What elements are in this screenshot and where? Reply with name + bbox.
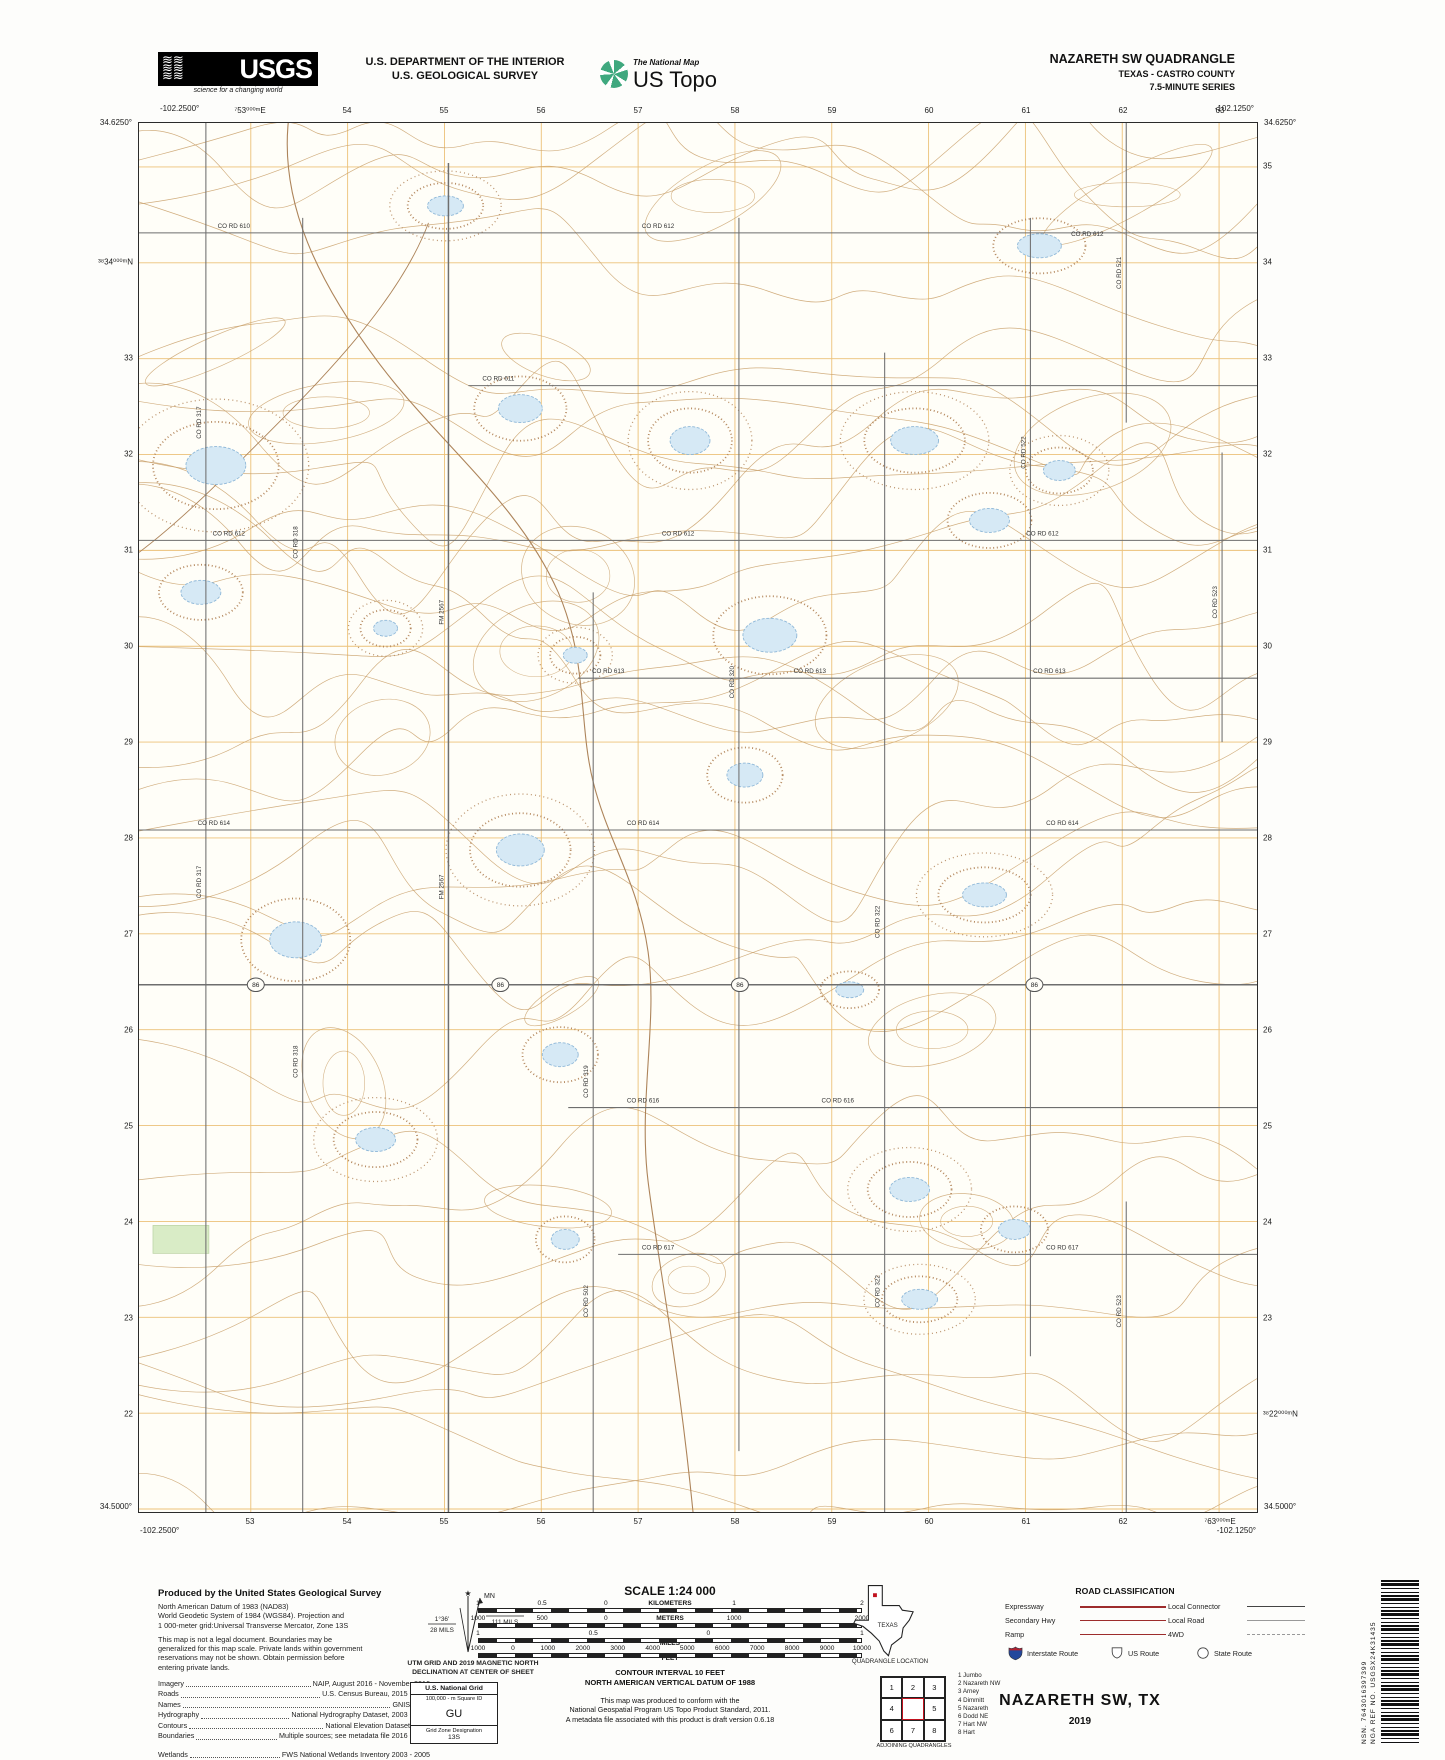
grid-label-bottom: 62 xyxy=(1119,1517,1128,1526)
grid-label-left: 31 xyxy=(124,546,133,555)
contour-interval: CONTOUR INTERVAL 10 FEET xyxy=(520,1668,820,1678)
usgs-tagline: science for a changing world xyxy=(158,87,318,94)
scale-tick: 8000 xyxy=(785,1645,800,1652)
adjoining-cell-current xyxy=(902,1698,923,1719)
road-label: CO RD 612 xyxy=(1071,231,1104,238)
barcode-nsn: NSN. 7643016397399 xyxy=(1360,1580,1369,1744)
quad-name: NAZARETH SW QUADRANGLE xyxy=(905,52,1235,66)
grid-label-bottom: ⁷63⁰⁰⁰ᵐE xyxy=(1204,1517,1235,1526)
credit-row: ContoursNational Elevation Dataset, 2007 xyxy=(158,1721,430,1731)
national-map-brand: The National Map xyxy=(633,58,699,67)
state-route-legend: State Route xyxy=(1196,1646,1252,1660)
scale-tick: 2000 xyxy=(575,1645,590,1652)
credit-row: WetlandsFWS National Wetlands Inventory … xyxy=(158,1750,430,1760)
quadrangle-heading: NAZARETH SW QUADRANGLE TEXAS - CASTRO CO… xyxy=(905,52,1235,92)
dept-line1: U.S. DEPARTMENT OF THE INTERIOR xyxy=(300,55,630,69)
road-class-row: Ramp xyxy=(1005,1630,1166,1639)
us-route-shield-icon xyxy=(1110,1646,1124,1660)
road-label: CO RD 610 xyxy=(218,223,251,230)
grid-label-right: 25 xyxy=(1263,1122,1272,1131)
corner-latitude-bl: 34.5000° xyxy=(56,1502,132,1511)
pond xyxy=(1043,461,1075,481)
quad-series: 7.5-MINUTE SERIES xyxy=(905,82,1235,92)
road-label: CO RD 322 xyxy=(875,1275,882,1308)
dept-line2: U.S. GEOLOGICAL SURVEY xyxy=(300,69,630,83)
scale-tick: 0.5 xyxy=(538,1600,547,1607)
credit-row: RoadsU.S. Census Bureau, 2015 - 2018 xyxy=(158,1689,430,1699)
grid-label-left: 27 xyxy=(124,930,133,939)
road-class-row: Local Road xyxy=(1168,1616,1305,1625)
grid-label-left: ³⁸34⁰⁰⁰ᵐN xyxy=(98,258,133,267)
grid-label-bottom: 54 xyxy=(343,1517,352,1526)
grid-label-top: 55 xyxy=(440,106,449,115)
interstate-route-legend: Interstate Route xyxy=(1008,1646,1078,1661)
credit-leader xyxy=(190,1757,280,1758)
grid-label-left: 30 xyxy=(124,642,133,651)
road-label: CO RD 317 xyxy=(196,406,203,439)
road-class-row: Secondary Hwy xyxy=(1005,1616,1166,1625)
grid-label-left: 32 xyxy=(124,450,133,459)
adjoining-quadrangle-grid: 12345678 xyxy=(880,1676,946,1742)
state-route-number: 86 xyxy=(497,982,505,989)
svg-text:1°36': 1°36' xyxy=(435,1615,449,1623)
road-label: CO RD 522 xyxy=(1020,436,1027,469)
adjoining-name: 2 Nazareth NW xyxy=(958,1680,1048,1688)
grid-label-right: 27 xyxy=(1263,930,1272,939)
pond xyxy=(563,647,587,663)
scale-unit: METERS xyxy=(656,1615,683,1622)
credit-row: BoundariesMultiple sources; see metadata… xyxy=(158,1731,430,1741)
grid-label-left: 28 xyxy=(124,834,133,843)
scale-bar-feet: 1000010002000300040005000600070008000900… xyxy=(478,1645,862,1660)
scale-tick: 4000 xyxy=(645,1645,660,1652)
road-class-row: Expressway xyxy=(1005,1602,1166,1611)
quadrangle-location-caption: QUADRANGLE LOCATION xyxy=(822,1658,958,1665)
datum-note-line: World Geodetic System of 1984 (WGS84). P… xyxy=(158,1611,430,1620)
adjoining-caption: ADJOINING QUADRANGLES xyxy=(856,1743,972,1749)
pond xyxy=(970,508,1010,532)
grid-label-top: 58 xyxy=(731,106,740,115)
road-class-label: Ramp xyxy=(1005,1630,1075,1639)
credit-leader xyxy=(183,1707,391,1708)
quad-county: TEXAS - CASTRO COUNTY xyxy=(905,69,1235,79)
datum-note-line: This map is not a legal document. Bounda… xyxy=(158,1635,430,1644)
corner-longitude-tl: -102.2500° xyxy=(160,104,199,113)
barcode-ref: NGA REF NO. USGSX24K31435 xyxy=(1369,1580,1378,1744)
road-label: CO RD 322 xyxy=(875,905,882,938)
grid-label-left: 25 xyxy=(124,1122,133,1131)
conformance-note: This map was produced to conform with th… xyxy=(490,1696,850,1724)
grid-label-bottom: 55 xyxy=(440,1517,449,1526)
grid-label-left: 29 xyxy=(124,738,133,747)
interstate-shield-icon xyxy=(1008,1646,1023,1661)
grid-label-right: 28 xyxy=(1263,834,1272,843)
credit-label: Wetlands xyxy=(158,1750,188,1760)
svg-text:TEXAS: TEXAS xyxy=(878,1622,898,1629)
grid-label-right: 24 xyxy=(1263,1218,1272,1227)
credit-label: Names xyxy=(158,1700,181,1710)
pond xyxy=(1017,234,1061,258)
adjoining-cell: 4 xyxy=(881,1698,902,1719)
credit-value: FWS National Wetlands Inventory 2003 - 2… xyxy=(282,1750,430,1760)
corner-latitude-br: 34.5000° xyxy=(1264,1502,1296,1511)
contour-interval-note: CONTOUR INTERVAL 10 FEET NORTH AMERICAN … xyxy=(520,1668,820,1688)
quad-location-marker xyxy=(873,1593,877,1597)
road-label: CO RD 319 xyxy=(583,1065,590,1098)
scale-tick: 1 xyxy=(476,1600,480,1607)
scale-tick: 6000 xyxy=(715,1645,730,1652)
barcode-stripes-icon xyxy=(1381,1580,1419,1744)
grid-label-top: ⁷53⁰⁰⁰ᵐE xyxy=(234,106,265,115)
pond xyxy=(186,447,246,485)
pond xyxy=(891,427,939,455)
corner-longitude-br: -102.1250° xyxy=(1160,1526,1256,1535)
pond xyxy=(542,1043,578,1067)
credit-label: Contours xyxy=(158,1721,187,1731)
scale-tick: 500 xyxy=(537,1615,548,1622)
scale-unit: KILOMETERS xyxy=(648,1600,691,1607)
scale-bar-graphic xyxy=(478,1653,862,1658)
usng-square-id: GU xyxy=(411,1702,497,1725)
road-class-sample-line xyxy=(1247,1620,1305,1621)
scale-bar-kilometers: 10.5012KILOMETERS xyxy=(478,1600,862,1615)
grid-label-bottom: 61 xyxy=(1022,1517,1031,1526)
scale-bar-graphic xyxy=(478,1608,862,1613)
true-north-star: ★ xyxy=(464,1590,471,1598)
grid-label-right: ³⁸22⁰⁰⁰ᵐN xyxy=(1263,1410,1298,1419)
scale-bar-meters: 1000500010002000METERS xyxy=(478,1615,862,1630)
grid-label-right: 34 xyxy=(1263,258,1272,267)
pond xyxy=(551,1229,579,1249)
road-label: CO RD 521 xyxy=(1116,256,1123,289)
road-label: CO RD 612 xyxy=(213,530,246,537)
road-label: CO RD 611 xyxy=(482,376,514,383)
datum-note-line: generalized for this map scale. Private … xyxy=(158,1644,430,1653)
adjoining-cell: 7 xyxy=(902,1720,923,1741)
grid-label-right: 33 xyxy=(1263,354,1272,363)
usgs-logo-box: ≋≋≋≋≋≋ USGS xyxy=(158,52,318,86)
grid-label-left: 22 xyxy=(124,1410,133,1419)
grid-label-bottom: 53 xyxy=(246,1517,255,1526)
vertical-datum: NORTH AMERICAN VERTICAL DATUM OF 1988 xyxy=(520,1678,820,1688)
scale-title: SCALE 1:24 000 xyxy=(520,1584,820,1598)
road-label: CO RD 614 xyxy=(198,820,231,827)
ustopo-globe-icon xyxy=(600,60,628,88)
grid-label-right: 31 xyxy=(1263,546,1272,555)
barcode: NSN. 7643016397399 NGA REF NO. USGSX24K3… xyxy=(1360,1580,1440,1744)
corner-latitude-tr: 34.6250° xyxy=(1264,118,1296,127)
road-label: CO RD 318 xyxy=(293,1045,300,1078)
road-label: CO RD 612 xyxy=(642,223,675,230)
road-label: FM 2567 xyxy=(438,599,445,624)
usgs-wave-icon: ≋≋≋≋≋≋ xyxy=(162,56,206,82)
state-route-number: 86 xyxy=(1031,982,1039,989)
road-label: CO RD 614 xyxy=(1046,820,1079,827)
grid-label-bottom: 56 xyxy=(537,1517,546,1526)
map-area: CO RD 610CO RD 612CO RD 612CO RD 611CO R… xyxy=(138,122,1258,1513)
credit-row: NamesGNIS, 2016 xyxy=(158,1700,430,1710)
grid-label-top: 54 xyxy=(343,106,352,115)
scale-tick: 1 xyxy=(732,1600,736,1607)
conformance-line: This map was produced to conform with th… xyxy=(490,1696,850,1705)
road-label: CO RD 617 xyxy=(1046,1244,1079,1251)
grid-label-top: 57 xyxy=(634,106,643,115)
adjoining-name: 1 Jumbo xyxy=(958,1672,1048,1680)
road-label: CO RD 523 xyxy=(1116,1295,1123,1328)
road-class-sample-line xyxy=(1080,1634,1166,1635)
pond xyxy=(727,763,763,787)
adjoining-cell: 2 xyxy=(902,1677,923,1698)
road-label: CO RD 320 xyxy=(729,665,736,698)
usng-zone-label: Grid Zone Designation xyxy=(411,1725,497,1734)
road-class-sample-line xyxy=(1247,1606,1305,1607)
scale-bar-miles: 10.501MILES xyxy=(478,1630,862,1645)
scale-tick: 0 xyxy=(707,1630,711,1637)
road-class-label: Local Road xyxy=(1168,1616,1242,1625)
grid-label-left: 23 xyxy=(124,1314,133,1323)
scale-tick: 1 xyxy=(476,1630,480,1637)
road-class-sample-line xyxy=(1247,1634,1305,1635)
road-label: CO RD 318 xyxy=(293,526,300,559)
usng-subtitle: 100,000 - m Square ID xyxy=(411,1695,497,1702)
credit-label: Boundaries xyxy=(158,1731,194,1741)
pond xyxy=(963,883,1007,907)
pond xyxy=(270,922,322,958)
grid-label-top: 61 xyxy=(1022,106,1031,115)
credit-label: Imagery xyxy=(158,1679,184,1689)
pond xyxy=(902,1289,938,1309)
road-label: CO RD 613 xyxy=(592,668,625,675)
road-class-label: Local Connector xyxy=(1168,1602,1242,1611)
pond xyxy=(743,618,797,652)
produced-title: Produced by the United States Geological… xyxy=(158,1588,430,1599)
usng-box: U.S. National Grid 100,000 - m Square ID… xyxy=(410,1682,498,1744)
datum-note-line: North American Datum of 1983 (NAD83) xyxy=(158,1602,430,1611)
scale-tick: 5000 xyxy=(680,1645,695,1652)
road-label: CO RD 616 xyxy=(822,1098,855,1105)
grid-label-right: 35 xyxy=(1263,162,1272,171)
road-label: CO RD 613 xyxy=(794,668,827,675)
road-class-label: 4WD xyxy=(1168,1630,1242,1639)
grid-label-right: 23 xyxy=(1263,1314,1272,1323)
pond xyxy=(427,196,463,216)
grid-label-bottom: 58 xyxy=(731,1517,740,1526)
road-class-row: 4WD xyxy=(1168,1630,1305,1639)
pond xyxy=(356,1128,396,1152)
credit-label: Hydrography xyxy=(158,1710,199,1720)
svg-text:28 MILS: 28 MILS xyxy=(430,1627,454,1634)
pond xyxy=(181,580,221,604)
scale-tick: 0 xyxy=(511,1645,515,1652)
grid-label-right: 32 xyxy=(1263,450,1272,459)
source-credits: ImageryNAIP, August 2016 - November 2016… xyxy=(158,1679,430,1760)
pond xyxy=(998,1219,1030,1239)
corner-longitude-bl: -102.2500° xyxy=(140,1526,179,1535)
state-route-number: 86 xyxy=(252,982,260,989)
adjoining-cell: 6 xyxy=(881,1720,902,1741)
road-classification-title: ROAD CLASSIFICATION xyxy=(1000,1586,1250,1596)
road-label: CO RD 614 xyxy=(627,820,660,827)
road-class-row: Local Connector xyxy=(1168,1602,1305,1611)
grid-label-top: 56 xyxy=(537,106,546,115)
credit-leader xyxy=(201,1718,289,1719)
svg-text:MN: MN xyxy=(484,1593,495,1600)
scale-tick: 1000 xyxy=(471,1615,486,1622)
road-class-sample-line xyxy=(1080,1606,1166,1608)
scale-tick: 7000 xyxy=(750,1645,765,1652)
grid-label-top: 59 xyxy=(828,106,837,115)
scale-tick: 1000 xyxy=(727,1615,742,1622)
road-label: CO RD 317 xyxy=(196,865,203,898)
credit-leader xyxy=(186,1686,311,1687)
corner-latitude-tl: 34.6250° xyxy=(56,118,132,127)
scale-tick: 9000 xyxy=(820,1645,835,1652)
conformance-line: A metadata file associated with this pro… xyxy=(490,1715,850,1724)
pond xyxy=(374,620,398,636)
us-route-legend: US Route xyxy=(1110,1646,1159,1660)
pond xyxy=(496,834,544,866)
pond xyxy=(890,1177,930,1201)
scale-tick: 0 xyxy=(604,1615,608,1622)
ustopo-product: US Topo xyxy=(633,67,717,93)
credit-value: Multiple sources; see metadata file 2016… xyxy=(279,1731,430,1741)
road-label: CO RD 612 xyxy=(1026,530,1059,537)
state-locator-map: TEXAS xyxy=(842,1584,938,1658)
usng-title: U.S. National Grid xyxy=(411,1683,497,1695)
pond xyxy=(498,395,542,423)
department-heading: U.S. DEPARTMENT OF THE INTERIOR U.S. GEO… xyxy=(300,55,630,83)
grid-label-right: 29 xyxy=(1263,738,1272,747)
credit-label: Roads xyxy=(158,1689,179,1699)
road-label: FM 2567 xyxy=(438,874,445,899)
credit-leader xyxy=(181,1697,320,1698)
scale-tick: 1000 xyxy=(541,1645,556,1652)
scale-bars: 10.5012KILOMETERS1000500010002000METERS1… xyxy=(478,1600,862,1660)
grid-label-left: 33 xyxy=(124,354,133,363)
road-label: CO RD 613 xyxy=(1033,668,1066,675)
road-label: CO RD 502 xyxy=(583,1285,590,1318)
grid-label-left: 26 xyxy=(124,1026,133,1035)
datum-note-line: 1 000-meter grid:Universal Transverse Me… xyxy=(158,1621,430,1630)
grid-label-right: 30 xyxy=(1263,642,1272,651)
road-class-sample-line xyxy=(1080,1620,1166,1621)
grid-label-bottom: 59 xyxy=(828,1517,837,1526)
usng-zone: 13S xyxy=(411,1734,497,1741)
grid-label-top: 60 xyxy=(925,106,934,115)
road-label: CO RD 616 xyxy=(627,1098,660,1105)
scale-tick: 1000 xyxy=(471,1645,486,1652)
adjoining-cell: 1 xyxy=(881,1677,902,1698)
scale-bar-graphic xyxy=(478,1638,862,1643)
pond xyxy=(670,427,710,455)
conformance-line: National Geospatial Program US Topo Prod… xyxy=(490,1705,850,1714)
road-label: CO RD 612 xyxy=(662,530,695,537)
credit-leader xyxy=(196,1739,277,1740)
credit-row: ImageryNAIP, August 2016 - November 2016 xyxy=(158,1679,430,1689)
road-label: CO RD 523 xyxy=(1212,586,1219,619)
credit-row: HydrographyNational Hydrography Dataset,… xyxy=(158,1710,430,1720)
adjoining-name: 8 Hart xyxy=(958,1729,1048,1737)
sheet-title: NAZARETH SW, TX xyxy=(940,1692,1220,1710)
scale-tick: 3000 xyxy=(610,1645,625,1652)
grid-label-right: 26 xyxy=(1263,1026,1272,1035)
road-label: CO RD 617 xyxy=(642,1244,675,1251)
road-class-label: Expressway xyxy=(1005,1602,1075,1611)
scale-bar-graphic xyxy=(478,1623,862,1628)
corner-longitude-tr: -102.1250° xyxy=(1168,104,1254,113)
usgs-topo-sheet: { "header": { "usgs": { "logo_text": "US… xyxy=(0,0,1445,1746)
ustopo-logo: The National Map US Topo xyxy=(600,52,740,96)
grid-label-top: 62 xyxy=(1119,106,1128,115)
scale-tick: 0 xyxy=(604,1600,608,1607)
sheet-year: 2019 xyxy=(940,1716,1220,1727)
road-class-label: Secondary Hwy xyxy=(1005,1616,1075,1625)
state-route-circle-icon xyxy=(1196,1646,1210,1660)
state-route-number: 86 xyxy=(736,982,744,989)
credit-leader xyxy=(189,1728,323,1729)
scale-tick: 0.5 xyxy=(589,1630,598,1637)
grid-label-bottom: 57 xyxy=(634,1517,643,1526)
grid-label-left: 24 xyxy=(124,1218,133,1227)
grid-label-bottom: 60 xyxy=(925,1517,934,1526)
